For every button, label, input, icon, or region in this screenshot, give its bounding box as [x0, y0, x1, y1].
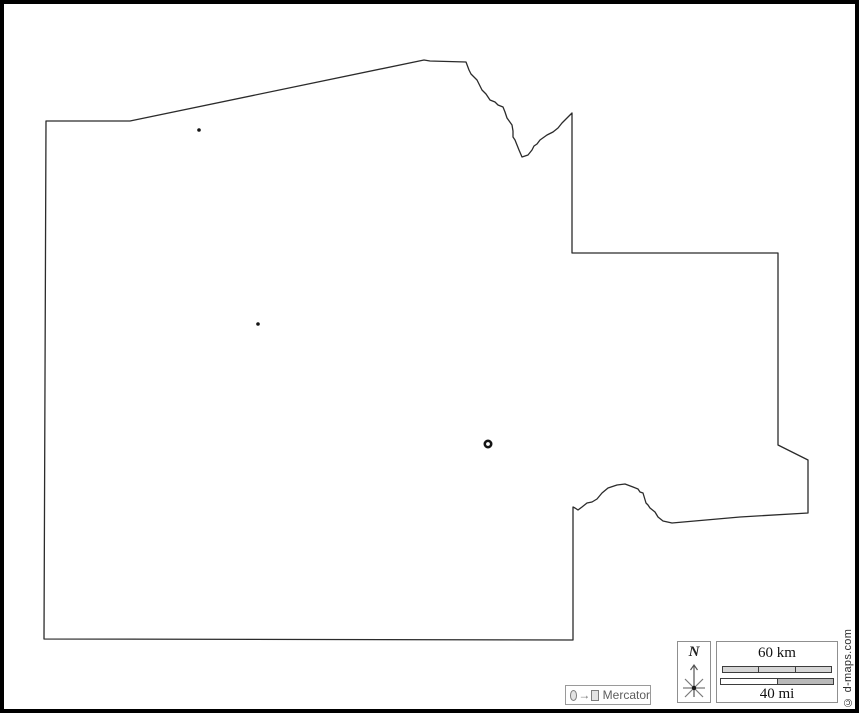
projection-square-icon: [591, 690, 598, 701]
scale-mi-bar: [720, 678, 834, 685]
city-dot: [256, 322, 260, 326]
globe-circle-icon: [570, 690, 577, 701]
compass-rose-icon: [678, 661, 710, 701]
scale-km-bar: [722, 666, 832, 673]
arrow-right-icon: →: [578, 690, 590, 700]
outline-map: [0, 0, 859, 713]
copyright-text: © d-maps.com: [842, 636, 854, 708]
north-label: N: [678, 644, 710, 661]
region-outline: [44, 60, 808, 640]
map-canvas: N 60 km 40 mi → Mercator © d-maps.com: [0, 0, 859, 713]
scale-bar-box: 60 km 40 mi: [716, 641, 838, 703]
scale-mi-label: 40 mi: [717, 686, 837, 703]
projection-legend: → Mercator: [565, 685, 651, 705]
scale-km-label: 60 km: [717, 645, 837, 662]
city-dot: [197, 128, 201, 132]
north-arrow-box: N: [677, 641, 711, 703]
projection-name: Mercator: [603, 688, 650, 702]
